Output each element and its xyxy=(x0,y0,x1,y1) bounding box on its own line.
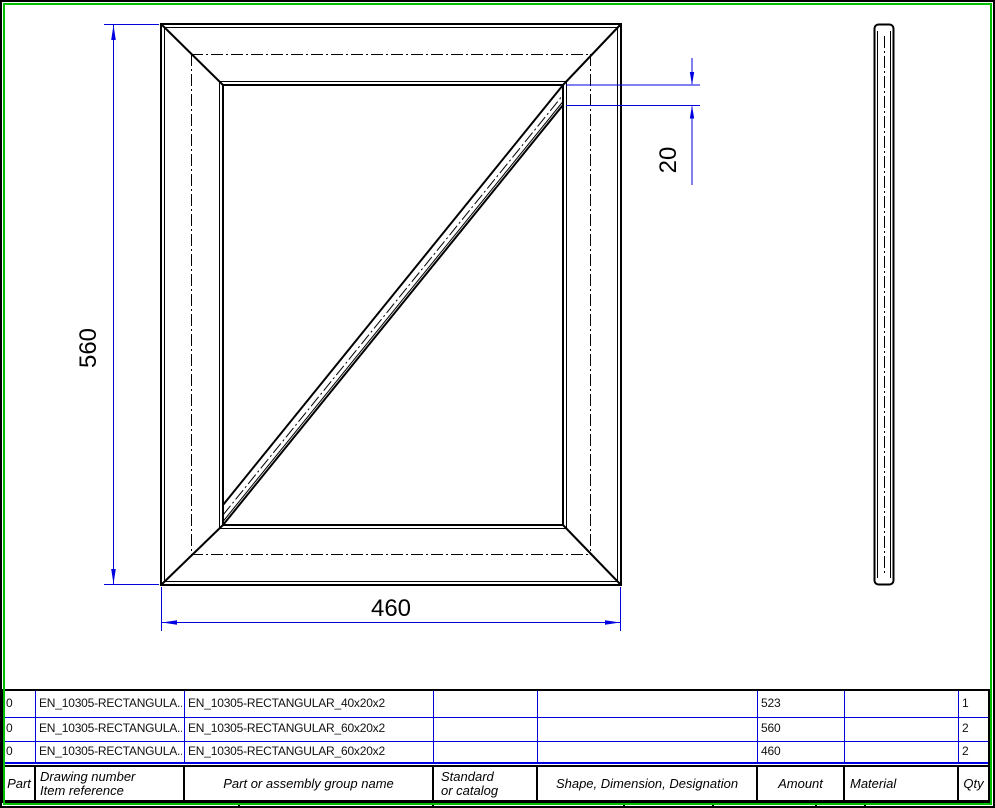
arrow-up-icon xyxy=(111,25,116,40)
header-drawing-number: Drawing number Item reference xyxy=(40,767,182,800)
header-material: Material xyxy=(850,767,956,800)
arrow-down-icon xyxy=(111,569,116,584)
front-view xyxy=(161,24,621,585)
cell-amount: 460 xyxy=(761,740,842,763)
col-divider xyxy=(537,691,538,762)
arrow-right-icon xyxy=(605,620,620,625)
header-group-name: Part or assembly group name xyxy=(185,767,432,800)
col-divider xyxy=(433,691,434,762)
col-divider xyxy=(844,691,845,762)
titleblock-stub xyxy=(712,803,714,808)
header-standard-text: Standard or catalog xyxy=(441,770,498,798)
side-view xyxy=(875,25,894,585)
titleblock-stub xyxy=(238,803,240,808)
header-line2: Item reference xyxy=(40,783,124,798)
dim-label-460: 460 xyxy=(371,595,411,622)
header-bottom-border xyxy=(2,800,990,803)
bom-right-border xyxy=(988,689,990,803)
titleblock-stub xyxy=(623,803,625,808)
dimension-height: 560 xyxy=(75,25,159,585)
cell-qty: 2 xyxy=(962,717,988,740)
header-part: Part xyxy=(4,767,34,800)
bom-top-border xyxy=(2,689,990,691)
titleblock-stub xyxy=(432,803,434,808)
brace-upper-edge xyxy=(223,85,563,505)
col-divider xyxy=(958,691,959,762)
header-shape: Shape, Dimension, Designation xyxy=(538,767,756,800)
cell-group-name: EN_10305-RECTANGULAR_60x20x2 xyxy=(188,740,431,763)
cell-drawing-number: EN_10305-RECTANGULA... xyxy=(39,692,182,715)
header-line1: Drawing number xyxy=(40,769,135,784)
dimension-brace-offset: 20 xyxy=(566,58,700,185)
brace-centerline xyxy=(223,95,563,515)
cell-qty: 1 xyxy=(962,692,988,715)
arrow-left-icon xyxy=(162,620,177,625)
dimension-width: 460 xyxy=(162,587,621,631)
col-divider xyxy=(184,691,185,762)
cell-part: 0 xyxy=(6,717,33,740)
drawing-sheet: 560 460 20 xyxy=(0,0,995,808)
dim-label-560: 560 xyxy=(75,328,102,368)
cell-amount: 523 xyxy=(761,692,842,715)
header-drawing-number-text: Drawing number Item reference xyxy=(40,770,135,798)
cell-amount: 560 xyxy=(761,717,842,740)
col-divider xyxy=(757,691,758,762)
cell-group-name: EN_10305-RECTANGULAR_40x20x2 xyxy=(188,692,431,715)
cell-part: 0 xyxy=(6,740,33,763)
header-amount: Amount xyxy=(758,767,843,800)
dim-label-20: 20 xyxy=(655,147,682,174)
cell-part: 0 xyxy=(6,692,33,715)
arrow-up-icon xyxy=(690,106,694,119)
cell-qty: 2 xyxy=(962,740,988,763)
cell-drawing-number: EN_10305-RECTANGULA... xyxy=(39,717,182,740)
cell-drawing-number: EN_10305-RECTANGULA... xyxy=(39,740,182,763)
header-standard: Standard or catalog xyxy=(441,767,535,800)
header-col-divider xyxy=(843,767,845,800)
titleblock-stub xyxy=(864,803,866,808)
drawing-canvas: 560 460 20 xyxy=(0,0,995,688)
header-col-divider xyxy=(432,767,434,800)
frame-outer-wall-line xyxy=(165,28,618,582)
header-line2: or catalog xyxy=(441,783,498,798)
brace-wall-line xyxy=(223,102,563,522)
cell-group-name: EN_10305-RECTANGULAR_60x20x2 xyxy=(188,717,431,740)
col-divider xyxy=(35,691,36,762)
header-col-divider xyxy=(34,767,36,800)
header-qty: Qty xyxy=(959,767,988,800)
header-line1: Standard xyxy=(441,769,494,784)
titleblock-stub xyxy=(815,803,817,808)
brace-lower-edge xyxy=(223,105,563,525)
arrow-down-icon xyxy=(690,72,694,85)
